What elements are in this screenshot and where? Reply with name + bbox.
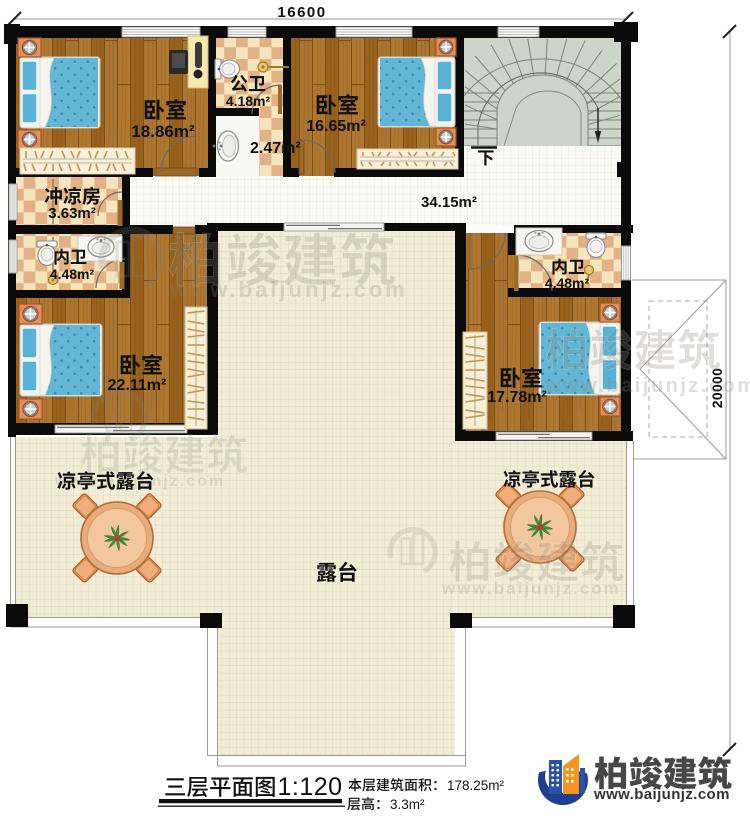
svg-text:178.25m²: 178.25m² <box>447 778 505 793</box>
svg-text:17.78m²: 17.78m² <box>487 389 547 406</box>
svg-text:4.18m²: 4.18m² <box>226 93 271 109</box>
svg-text:1:120: 1:120 <box>278 773 343 801</box>
svg-text:34.15m²: 34.15m² <box>421 194 477 211</box>
svg-text:3.63m²: 3.63m² <box>48 205 96 222</box>
svg-text:www.baijunjz.com: www.baijunjz.com <box>544 375 750 397</box>
svg-text:www.baijunjz.com: www.baijunjz.com <box>593 786 730 803</box>
svg-text:4.48m²: 4.48m² <box>50 266 95 282</box>
svg-text:4.48m²: 4.48m² <box>545 275 590 291</box>
svg-text:2.47m²: 2.47m² <box>250 140 301 157</box>
svg-text:18.86m²: 18.86m² <box>131 122 195 141</box>
svg-text:3.3m²: 3.3m² <box>390 797 425 812</box>
svg-text:22.11m²: 22.11m² <box>108 377 167 394</box>
svg-text:www.baijunjz.com: www.baijunjz.com <box>169 277 408 302</box>
svg-text:www.baijunjz.com: www.baijunjz.com <box>441 579 621 598</box>
svg-text:16.65m²: 16.65m² <box>306 118 366 135</box>
svg-text:16600: 16600 <box>277 4 326 21</box>
